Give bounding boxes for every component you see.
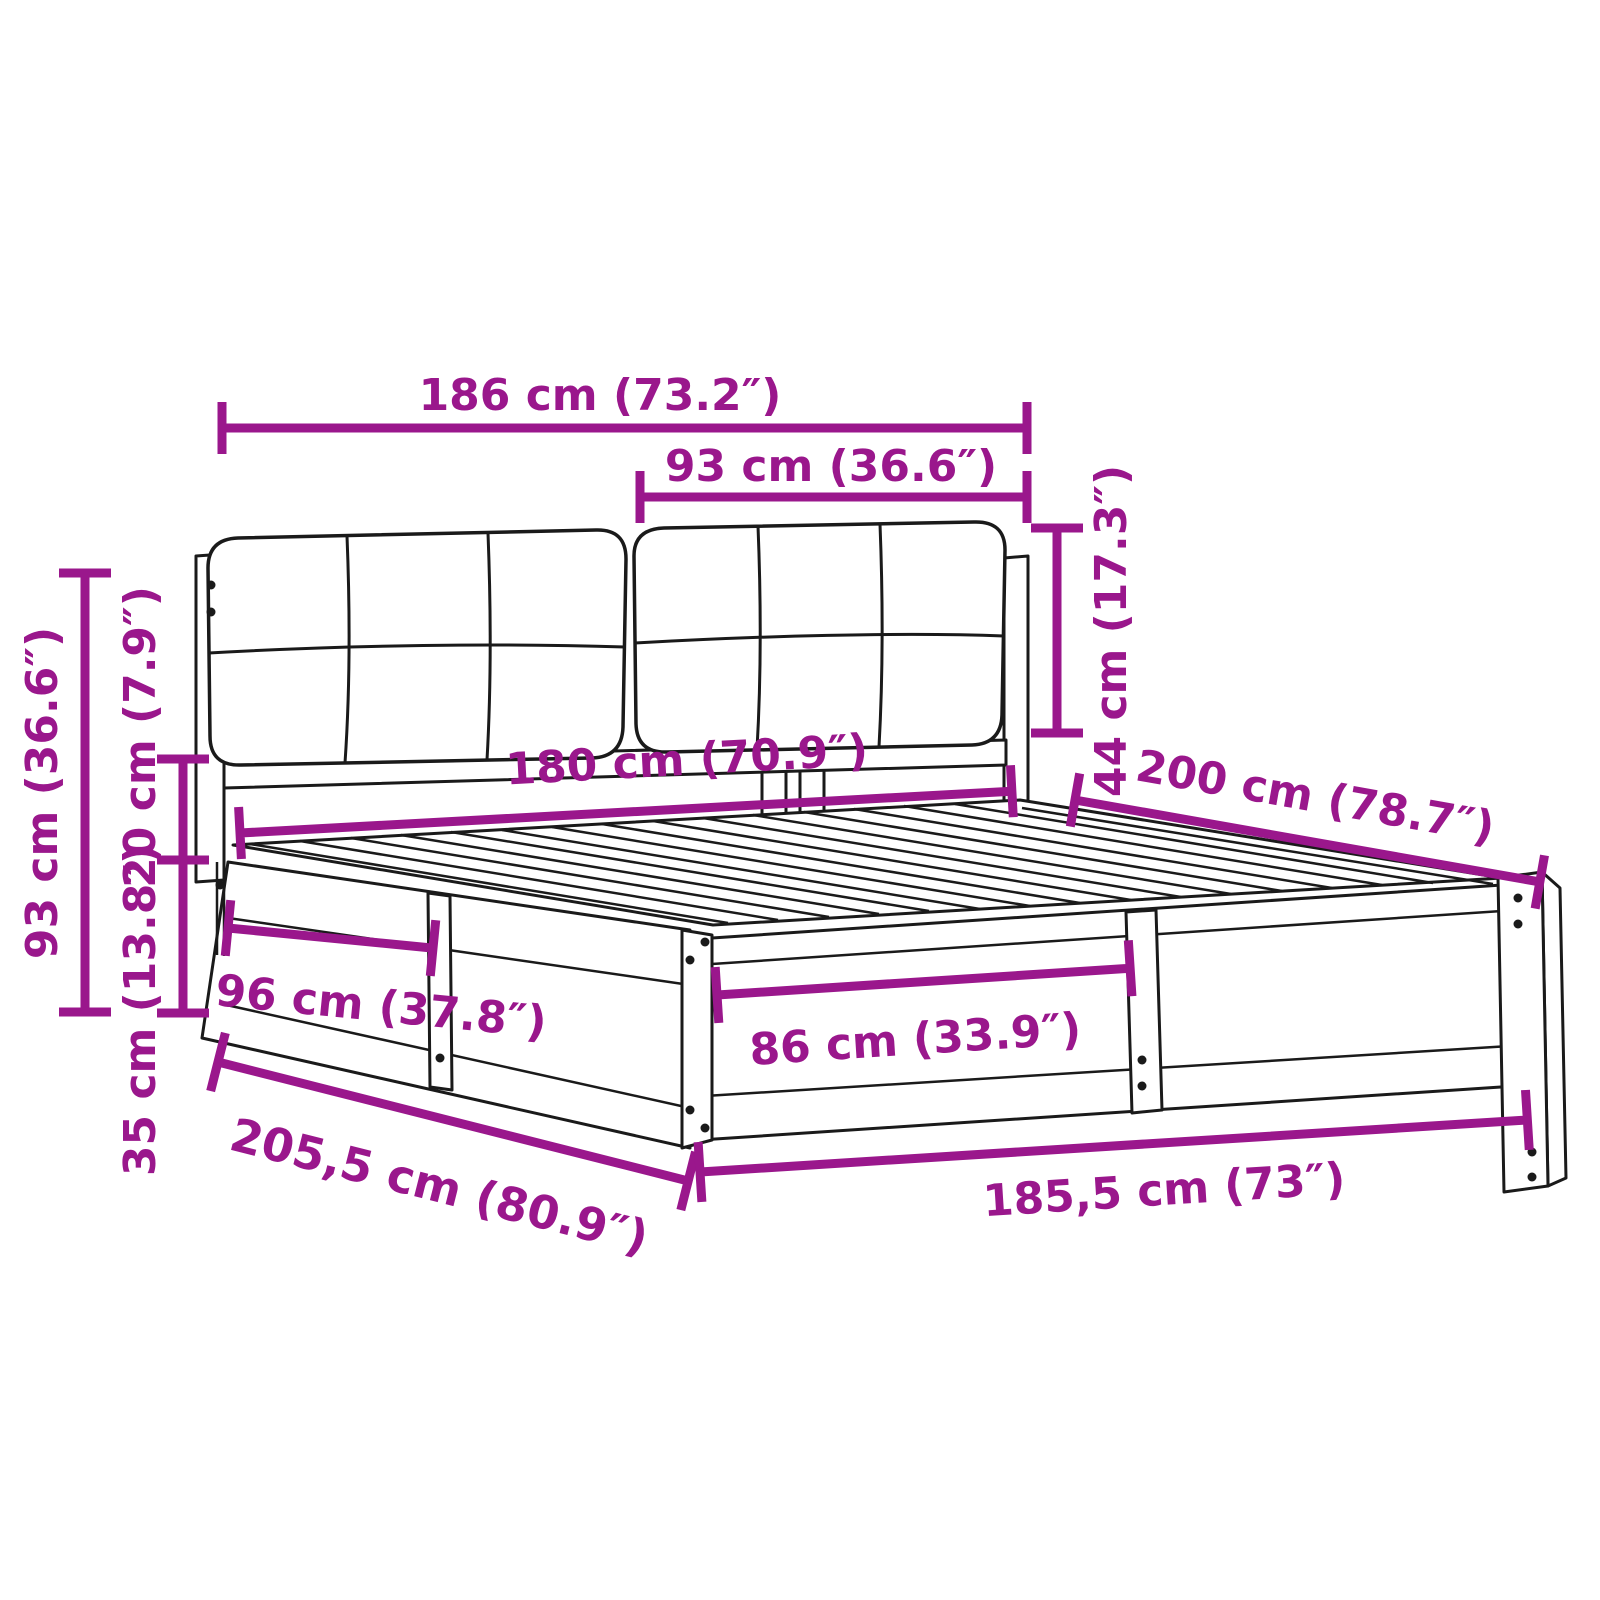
cushion-right: [634, 522, 1005, 752]
diagram-canvas: 186 cm (73.2″) 93 cm (36.6″) 44 cm (17.3…: [0, 0, 1600, 1600]
dimension-label: 35 cm (13.8″): [115, 844, 166, 1176]
dimension-label: 205,5 cm (80.9″): [225, 1107, 654, 1265]
dim-base-height: 35 cm (13.8″): [115, 844, 209, 1176]
dimension-label: 93 cm (36.6″): [17, 627, 68, 959]
front-right-corner-post: [1498, 872, 1548, 1192]
bed-dimension-diagram: 186 cm (73.2″) 93 cm (36.6″) 44 cm (17.3…: [0, 0, 1600, 1600]
bed-frame-illustration: [196, 522, 1566, 1192]
dimension-label: 44 cm (17.3″): [1086, 465, 1137, 797]
dimension-label: 185,5 cm (73″): [981, 1154, 1346, 1228]
dim-cushion-width: 93 cm (36.6″): [640, 441, 1027, 523]
front-panel: [700, 885, 1516, 1140]
dimension-label: 93 cm (36.6″): [665, 441, 997, 492]
dim-cushion-height: 44 cm (17.3″): [1031, 465, 1137, 797]
dim-headboard-height: 93 cm (36.6″): [17, 573, 111, 1012]
dimension-label: 20 cm (7.9″): [115, 586, 166, 888]
dimension-line: [1031, 528, 1083, 733]
headboard-cushions: [208, 522, 1005, 765]
cushion-left: [208, 530, 626, 765]
dimension-label: 186 cm (73.2″): [419, 370, 782, 421]
